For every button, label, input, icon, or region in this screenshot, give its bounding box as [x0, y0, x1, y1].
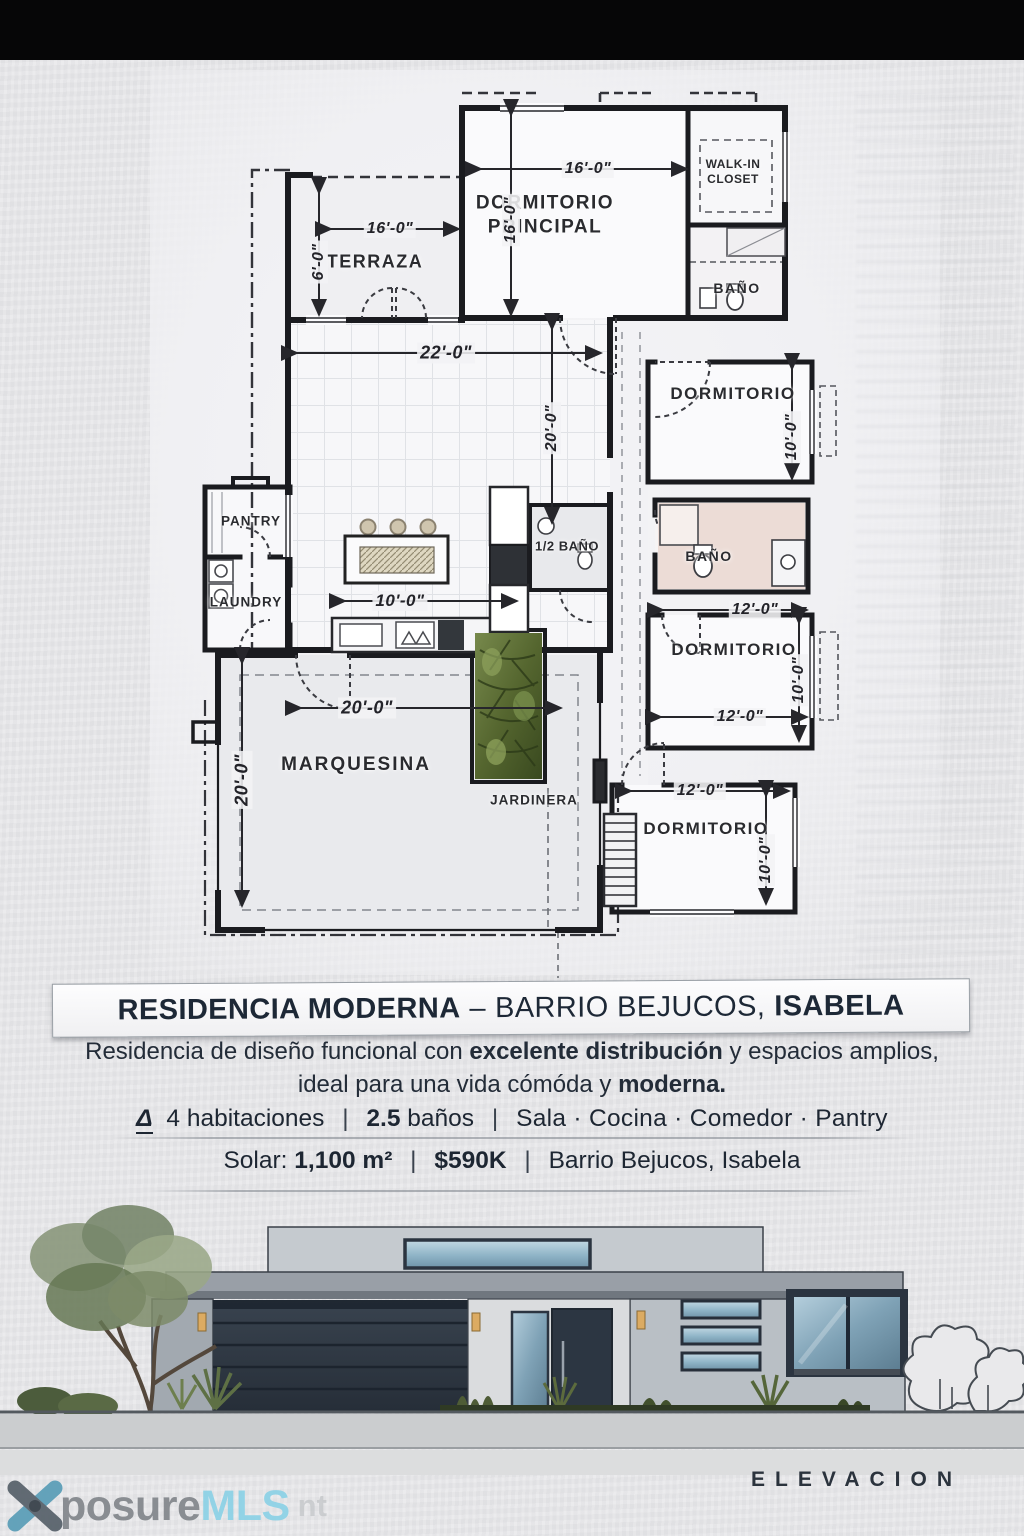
room-label-dormitorio-4: DORMITORIO	[643, 819, 768, 839]
dim-dormitorio-3-width-top: 12'-0"	[729, 601, 781, 619]
dim-dormitorio-3-width-bottom: 12'-0"	[714, 708, 766, 726]
title-barrio: BARRIO BEJUCOS,	[495, 990, 765, 1025]
dim-dormitorio-3-depth: 10'-0"	[790, 654, 808, 706]
dim-dorm-principal-depth: 16'-0"	[502, 194, 520, 246]
room-label-marquesina: MARQUESINA	[281, 754, 431, 776]
room-label-dormitorio-2: DORMITORIO	[670, 384, 795, 404]
dim-sala-depth: 20'-0"	[543, 402, 561, 454]
description-line1-bold: excelente distribución	[469, 1038, 722, 1065]
room-label-bano-2: BAÑO	[685, 548, 732, 564]
dim-dormitorio-4-depth: 10'-0"	[757, 834, 775, 886]
elevation-upper-volume	[268, 1227, 763, 1273]
dim-terraza-depth: 6'-0"	[310, 240, 328, 283]
description-line-2: ideal para una vida cómóda y moderna.	[0, 1071, 1024, 1099]
elevation-rendering	[0, 1195, 1024, 1475]
dim-dormitorio-2-depth: 10'-0"	[783, 411, 801, 463]
stairs	[604, 814, 636, 906]
watermark-posure-text: posure	[60, 1482, 200, 1531]
sketched-bushes	[903, 1325, 1024, 1411]
dim-marquesina-width: 20'-0"	[338, 698, 396, 719]
bed-icon: Δ	[136, 1105, 152, 1134]
features-separator-1: |	[342, 1105, 348, 1132]
elevation-right-volume	[630, 1289, 908, 1412]
dim-marquesina-depth: 20'-0"	[232, 751, 253, 809]
features-row: Δ 4 habitaciones | 2.5 baños | Sala · Co…	[0, 1105, 1024, 1133]
room-label-walk-in-closet: WALK-IN CLOSET	[693, 157, 773, 187]
entry-door	[552, 1309, 612, 1412]
room-label-dormitorio-3: DORMITORIO	[671, 640, 796, 660]
divider-rule-2	[148, 1190, 876, 1192]
features-banos-label: baños	[407, 1105, 474, 1132]
room-label-pantry: PANTRY	[221, 514, 281, 529]
room-label-bano-principal: BAÑO	[713, 280, 760, 296]
solar-separator-1: |	[410, 1147, 416, 1174]
solar-location: Barrio Bejucos, Isabela	[549, 1147, 801, 1174]
ground	[0, 1412, 1024, 1475]
features-banos-value: 2.5	[366, 1105, 400, 1132]
jardinera-plants	[475, 633, 542, 779]
dim-dormitorio-4-width: 12'-0"	[674, 782, 726, 800]
solar-separator-2: |	[524, 1147, 530, 1174]
features-spaces: Sala · Cocina · Comedor · Pantry	[516, 1105, 888, 1132]
description-line2-pre: ideal para una vida cómóda y	[298, 1071, 618, 1098]
description-line2-bold: moderna.	[618, 1071, 726, 1098]
watermark-logo: posure MLS nt	[6, 1478, 327, 1534]
solar-area: 1,100 m²	[294, 1147, 392, 1174]
watermark-mls-text: MLS	[200, 1482, 289, 1531]
room-label-laundry: LAUNDRY	[210, 595, 283, 610]
solar-label: Solar:	[223, 1147, 287, 1174]
description-line-1: Residencia de diseño funcional con excel…	[0, 1038, 1024, 1066]
features-separator-2: |	[492, 1105, 498, 1132]
title-plate: RESIDENCIA MODERNA – BARRIO BEJUCOS, ISA…	[52, 978, 970, 1038]
description-line1-pre: Residencia de diseño funcional con	[85, 1038, 469, 1065]
solar-price: $590K	[434, 1147, 506, 1174]
xposure-butterfly-icon	[6, 1478, 64, 1534]
divider-rule-1	[112, 1137, 912, 1139]
features-habitaciones: 4 habitaciones	[166, 1105, 324, 1132]
description-line1-post: y espacios amplios,	[723, 1038, 939, 1065]
solar-row: Solar: 1,100 m² | $590K | Barrio Bejucos…	[0, 1147, 1024, 1175]
room-label-half-bano: 1/2 BAÑO	[535, 539, 599, 554]
dim-terraza-width: 16'-0"	[364, 220, 416, 238]
watermark-ghost-text: nt	[298, 1488, 327, 1524]
dim-sala-width: 22'-0"	[417, 343, 475, 364]
dim-dorm-principal-width: 16'-0"	[562, 160, 614, 178]
room-label-dormitorio-principal: DORMITORIO PRINCIPAL	[440, 191, 650, 239]
room-label-terraza: TERRAZA	[327, 252, 424, 273]
dim-cocina-width: 10'-0"	[372, 591, 427, 611]
title-name: RESIDENCIA MODERNA	[118, 992, 461, 1027]
elevation-entry	[468, 1299, 630, 1412]
title-dash: –	[469, 992, 486, 1025]
room-label-jardinera: JARDINERA	[490, 793, 578, 808]
title-city: ISABELA	[774, 989, 904, 1023]
